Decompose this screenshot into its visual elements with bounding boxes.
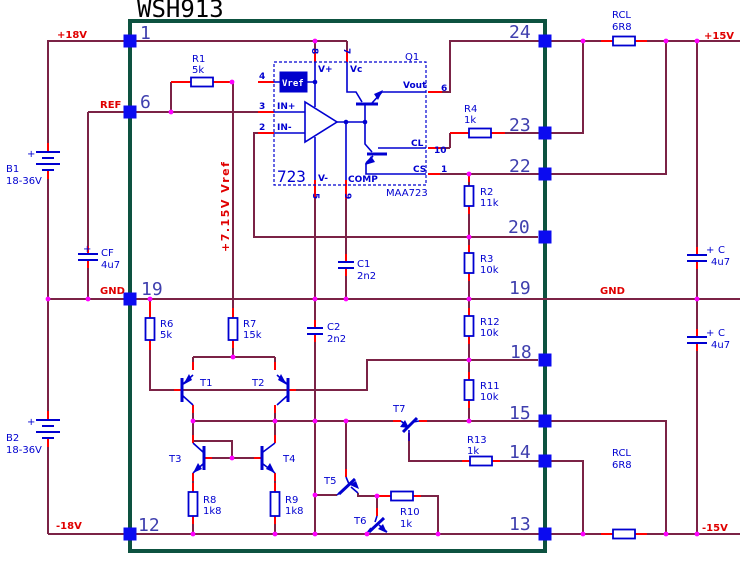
- pin-number-13: 13: [509, 514, 531, 535]
- label-t4: T4: [282, 454, 295, 465]
- pad-13: [539, 528, 552, 541]
- pad-22: [539, 168, 552, 181]
- pin-number-12: 12: [138, 515, 160, 536]
- pin-number-18: 18: [510, 342, 532, 363]
- transistor-t3-symbol: [193, 443, 204, 473]
- label-t6: T6: [353, 516, 366, 527]
- pad-24: [539, 35, 552, 48]
- label-r11-val: 10k: [480, 392, 499, 403]
- junction: [344, 120, 349, 125]
- label-cf-val: 4u7: [101, 260, 120, 271]
- label-cf-plus: +: [83, 244, 91, 255]
- ic-pin-label-vminus: V-: [318, 174, 328, 184]
- label-c-bot-plus: +: [706, 328, 714, 339]
- label-r9-val: 1k8: [285, 506, 304, 517]
- label-r8-ref: R8: [203, 495, 216, 506]
- label-r13-ref: R13: [467, 435, 487, 446]
- label-r13-val: 1k: [467, 446, 479, 457]
- transistor-t7-symbol: [400, 418, 419, 441]
- ic-pin-number-2: 2: [259, 123, 265, 133]
- pin-number-22: 22: [509, 156, 531, 177]
- label-r1-ref: R1: [192, 54, 205, 65]
- label-cf-ref: CF: [101, 248, 114, 259]
- pad-1: [124, 35, 137, 48]
- label-t1: T1: [199, 378, 212, 389]
- label-r12-val: 10k: [480, 328, 499, 339]
- resistor-r12-symbol: [465, 316, 474, 336]
- label-r4-ref: R4: [464, 104, 477, 115]
- pad-6: [124, 106, 137, 119]
- net-label-p15v: +15V: [704, 31, 734, 42]
- pad-14: [539, 455, 552, 468]
- module-title: WSH913: [137, 0, 224, 23]
- ic-pin-label-cl: CL: [411, 139, 424, 149]
- ic-big-label-723: 723: [277, 167, 306, 186]
- ic-pin-label-vplus: V+: [318, 65, 333, 75]
- label-b2-val: 18-36V: [6, 445, 42, 456]
- ic-pin-label-vout: Vout: [403, 81, 427, 91]
- label-b1-plus: +: [27, 149, 35, 160]
- label-c1-val: 2n2: [357, 271, 376, 282]
- ic-pin-label-vc: Vc: [350, 65, 362, 75]
- label-r9-ref: R9: [285, 495, 298, 506]
- label-b1-ref: B1: [6, 164, 19, 175]
- ic-pin-number-10: 10: [434, 146, 447, 156]
- pin-number-15: 15: [509, 403, 531, 424]
- transistor-t6-symbol: [367, 516, 387, 533]
- label-c-bot-ref: C: [718, 328, 725, 339]
- resistor-rcl-top-symbol: [613, 37, 635, 46]
- resistor-r4-symbol: [469, 129, 491, 138]
- label-c-top-plus: +: [706, 245, 714, 256]
- pin-number-6: 6: [140, 92, 151, 113]
- label-c2-val: 2n2: [327, 334, 346, 345]
- net-label-m15v: -15V: [702, 523, 728, 534]
- ic-part-number: MAA723: [386, 188, 428, 199]
- label-t7: T7: [392, 404, 405, 415]
- label-r4-val: 1k: [464, 115, 476, 126]
- transistor-t5-symbol: [337, 477, 359, 495]
- ic-pin-number-1: 1: [441, 165, 447, 175]
- resistor-rcl-bottom-symbol: [613, 530, 635, 539]
- ic-designator-q1: Q1: [405, 52, 419, 63]
- net-label-m18v: -18V: [56, 521, 82, 532]
- label-rcl-top-ref: RCL: [612, 10, 631, 21]
- junction: [363, 120, 368, 125]
- label-rcl-top-val: 6R8: [612, 22, 632, 33]
- label-c-top-val: 4u7: [711, 257, 730, 268]
- ic-pin-label-inminus: IN-: [277, 123, 292, 133]
- pin-number-1: 1: [140, 23, 151, 44]
- label-t2: T2: [251, 378, 264, 389]
- label-b1-val: 18-36V: [6, 176, 42, 187]
- label-c-top-ref: C: [718, 245, 725, 256]
- pin-number-14: 14: [509, 442, 531, 463]
- pad-15: [539, 415, 552, 428]
- resistor-r2-symbol: [465, 186, 474, 206]
- label-rcl-bot-val: 6R8: [612, 460, 632, 471]
- ic-pin-number-9: 9: [342, 193, 352, 199]
- cl-emitter-arrow-icon: [365, 156, 375, 165]
- label-r11-ref: R11: [480, 381, 500, 392]
- label-t3: T3: [168, 454, 181, 465]
- pad-18: [539, 354, 552, 367]
- net-label-vref-rail: +7.15V Vref: [219, 161, 232, 252]
- resistor-r13-symbol: [470, 457, 492, 466]
- label-r2-val: 11k: [480, 198, 499, 209]
- label-r3-val: 10k: [480, 265, 499, 276]
- label-b2-plus: +: [27, 417, 35, 428]
- vref-block-label: Vref: [282, 79, 304, 89]
- resistor-r11-symbol: [465, 380, 474, 400]
- net-label-p18v: +18V: [57, 30, 87, 41]
- label-c2-ref: C2: [327, 322, 340, 333]
- resistor-r9-symbol: [271, 492, 280, 516]
- pin-number-19-right: 19: [509, 278, 531, 299]
- pad-19-left: [124, 293, 137, 306]
- label-b2-ref: B2: [6, 433, 19, 444]
- resistor-r1-symbol: [191, 78, 213, 87]
- battery-b1-symbol: [36, 152, 60, 170]
- module-border: [130, 21, 545, 551]
- pin-number-19-left: 19: [141, 279, 163, 300]
- battery-b2-symbol: [36, 420, 60, 438]
- resistor-r10-symbol: [391, 492, 413, 501]
- net-label-gnd-left: GND: [100, 286, 125, 297]
- net-label-gnd-right: GND: [600, 286, 625, 297]
- transistor-t4-symbol: [262, 443, 275, 473]
- wsh913-schematic: WSH913 1 6 19 12 24 23 22 20 19 18 15 14…: [0, 0, 747, 567]
- ic-pin-label-cs: CS: [413, 165, 426, 175]
- label-rcl-bot-ref: RCL: [612, 448, 631, 459]
- label-r2-ref: R2: [480, 187, 493, 198]
- ic-pin-number-8: 8: [309, 48, 319, 54]
- ic-pin-label-inplus: IN+: [277, 102, 295, 112]
- pad-23: [539, 127, 552, 140]
- ic-pin-number-7: 7: [341, 48, 351, 54]
- resistor-r8-symbol: [189, 492, 198, 516]
- label-t5: T5: [323, 476, 336, 487]
- label-r7-val: 15k: [243, 330, 262, 341]
- schematic-canvas: WSH913 1 6 19 12 24 23 22 20 19 18 15 14…: [0, 0, 747, 567]
- label-r7-ref: R7: [243, 319, 256, 330]
- capacitor-c-bottom-symbol: [687, 337, 707, 343]
- label-r6-ref: R6: [160, 319, 173, 330]
- capacitor-c2-symbol: [307, 328, 323, 334]
- label-r3-ref: R3: [480, 254, 493, 265]
- label-r10-ref: R10: [400, 507, 420, 518]
- pin-number-24: 24: [509, 22, 531, 43]
- label-r1-val: 5k: [192, 65, 204, 76]
- capacitor-c1-symbol: [338, 262, 354, 268]
- label-c1-ref: C1: [357, 259, 370, 270]
- label-r8-val: 1k8: [203, 506, 222, 517]
- pin-number-20: 20: [508, 217, 530, 238]
- net-label-ref: REF: [100, 100, 121, 111]
- junction: [313, 80, 318, 85]
- resistor-r6-symbol: [146, 318, 155, 340]
- resistor-r3-symbol: [465, 253, 474, 273]
- pad-12: [124, 528, 137, 541]
- ic-pin-number-3: 3: [259, 102, 265, 112]
- ic-pin-number-5: 5: [310, 193, 320, 199]
- pad-20: [539, 231, 552, 244]
- pin-number-23: 23: [509, 115, 531, 136]
- resistor-r7-symbol: [229, 318, 238, 340]
- label-r6-val: 5k: [160, 330, 172, 341]
- opamp-symbol: [305, 102, 337, 142]
- ic-pin-label-comp: COMP: [348, 175, 378, 185]
- label-r12-ref: R12: [480, 317, 500, 328]
- label-r10-val: 1k: [400, 519, 412, 530]
- ic-pin-number-4: 4: [259, 72, 265, 82]
- ic-pin-number-6: 6: [441, 84, 447, 94]
- label-c-bot-val: 4u7: [711, 340, 730, 351]
- capacitor-c-top-symbol: [687, 255, 707, 261]
